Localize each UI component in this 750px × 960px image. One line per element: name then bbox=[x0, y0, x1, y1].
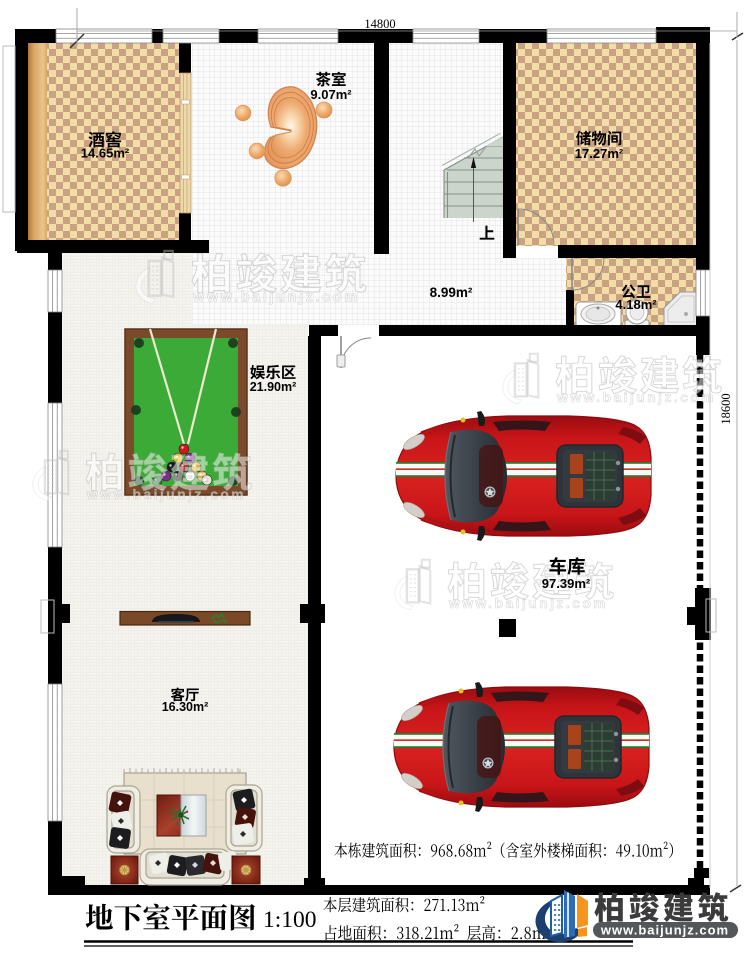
svg-text:4.18m²: 4.18m² bbox=[615, 297, 657, 312]
svg-text:8.99m²: 8.99m² bbox=[430, 285, 473, 300]
svg-text:www.baijunjz.com: www.baijunjz.com bbox=[556, 390, 716, 405]
svg-text:9.07m²: 9.07m² bbox=[310, 87, 352, 102]
svg-text:14.65m²: 14.65m² bbox=[81, 146, 130, 161]
svg-text:16.30m²: 16.30m² bbox=[162, 700, 209, 714]
svg-text:17.27m²: 17.27m² bbox=[575, 146, 624, 161]
svg-text:www.baijunjz.com: www.baijunjz.com bbox=[600, 923, 729, 938]
svg-text:www.baijunjz.com: www.baijunjz.com bbox=[192, 290, 360, 306]
svg-text:14800: 14800 bbox=[364, 17, 395, 31]
svg-text:www.baijunjz.com: www.baijunjz.com bbox=[86, 487, 246, 502]
svg-text:www.baijunjz.com: www.baijunjz.com bbox=[448, 596, 608, 611]
svg-text:97.39m²: 97.39m² bbox=[542, 576, 591, 591]
svg-text:21.90m²: 21.90m² bbox=[250, 380, 297, 394]
svg-text:1:100: 1:100 bbox=[263, 907, 317, 933]
svg-text:18600: 18600 bbox=[719, 393, 733, 424]
